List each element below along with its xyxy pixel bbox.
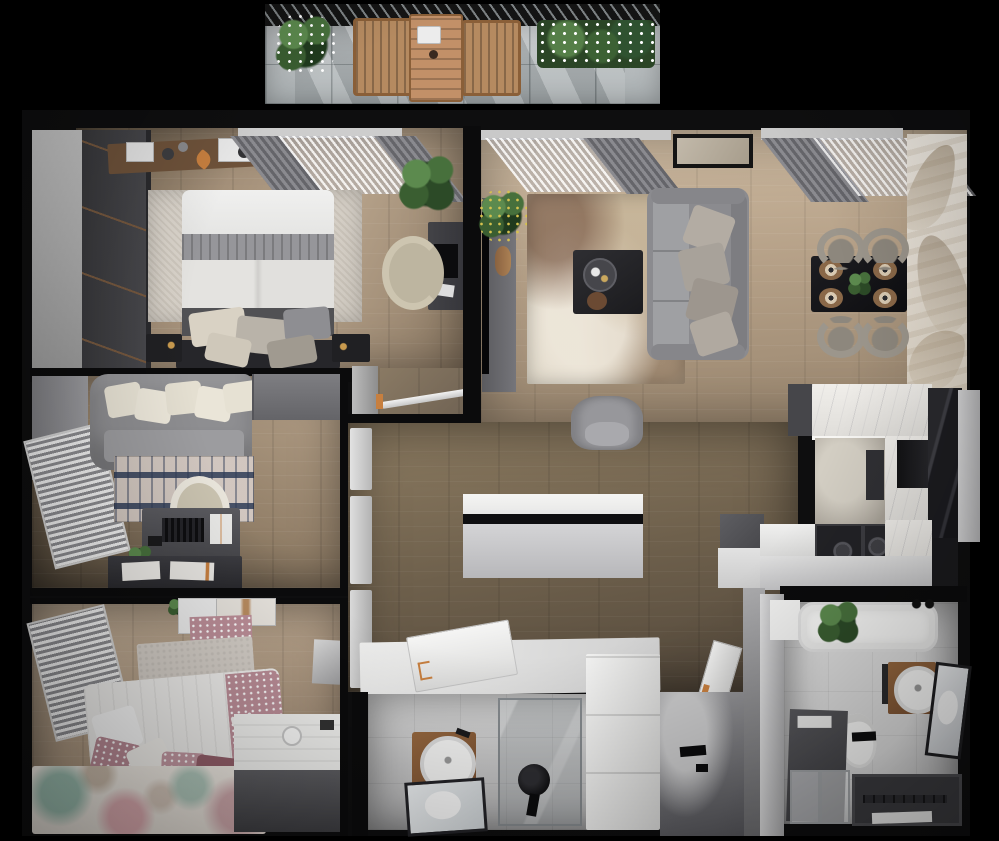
nook-floor — [660, 692, 744, 836]
mural-leaf — [907, 230, 967, 338]
kitchen-counter-wedge — [760, 524, 818, 556]
kids-standing-mirror — [312, 639, 342, 684]
guestbath-glass-partition — [498, 698, 582, 826]
kitchen-upper-dark-cabinet — [788, 384, 812, 436]
mainbath-north-wall — [780, 586, 967, 602]
door-handle — [418, 661, 433, 681]
kitchen-marble-counter — [812, 384, 932, 440]
kitchen-corner-cabinet-dark — [720, 514, 764, 552]
nightstand-left — [146, 334, 182, 362]
island-front — [463, 524, 643, 578]
bathtub-faucet — [910, 596, 936, 612]
kitchen-niche — [866, 450, 884, 500]
dining-chair — [861, 316, 909, 358]
wall-art-frame — [673, 134, 753, 168]
armchair — [571, 396, 643, 450]
tv-console-plant — [477, 188, 529, 244]
balcony-chair-right — [461, 20, 521, 96]
office-notebook — [210, 514, 232, 544]
main-bathroom — [760, 586, 967, 836]
balcony-flower-planter — [537, 20, 655, 68]
office-table-book-2 — [170, 561, 215, 581]
balcony-table-tray — [417, 26, 441, 44]
mainbath-plant — [816, 598, 862, 648]
bed-gray-throw — [182, 234, 334, 262]
hall-panel-wardrobe — [350, 496, 372, 584]
coffee-table-tray — [583, 258, 617, 292]
kids-desk-bowl — [282, 726, 302, 746]
balcony-chair-left — [353, 18, 413, 96]
mainbath-corner-cabinet — [770, 600, 800, 640]
balcony — [265, 4, 660, 104]
office-south-wall — [30, 588, 348, 596]
balcony-plant-left — [273, 12, 337, 78]
dining-chair — [817, 228, 865, 270]
bench-white-tray — [798, 716, 832, 728]
balcony-table-bottle — [429, 50, 438, 59]
kitchen-tall-glass-cabinet — [928, 388, 962, 538]
mural-leaf — [907, 138, 964, 238]
guestbath-black-stool — [518, 764, 550, 796]
office-table-book — [122, 561, 161, 581]
coffee-table-bowl — [587, 292, 607, 310]
place-setting — [873, 288, 897, 308]
kids-desk-front — [234, 770, 346, 832]
kitchen-counter-front — [760, 556, 932, 590]
floor-plan-render — [0, 0, 999, 841]
bedroom-shelf-bowl — [178, 142, 188, 152]
bedroom-shelf-vase — [162, 148, 174, 160]
bed-duvet — [182, 260, 334, 312]
office-phone — [148, 536, 162, 546]
kids-floral-rug — [32, 766, 266, 834]
mirror-reflection-basin — [424, 790, 462, 820]
armchair-seat — [585, 422, 629, 446]
kitchen-corner-cabinet-front — [718, 548, 764, 588]
dining-chair — [861, 228, 909, 270]
island-top — [463, 494, 643, 514]
leaf-mural-wall — [907, 134, 967, 396]
office-cabinet — [252, 374, 348, 420]
built-in-oven — [897, 440, 928, 488]
office-keyboard — [162, 518, 204, 542]
coffee-table — [573, 250, 643, 314]
island-black-stripe — [463, 514, 643, 524]
kitchen-side-panel — [958, 390, 980, 542]
guestbath-leaning-mirror — [404, 777, 488, 836]
hall-panel-wardrobe — [350, 428, 372, 490]
sofa-armrest-top — [651, 188, 745, 204]
bedroom-wardrobe-side-panel — [32, 130, 82, 372]
shower-white-mat — [872, 811, 932, 824]
floor-mat-dark — [680, 745, 707, 757]
mirror-reflection-basin — [936, 689, 960, 725]
guestbath-tall-cabinet — [586, 654, 660, 830]
hall-north-wall — [348, 414, 481, 423]
frosted-screen — [790, 770, 820, 824]
decor-wood-log — [495, 246, 511, 276]
bedroom-shelf-tray — [126, 142, 154, 162]
black-bath-mat — [852, 731, 876, 741]
frosted-screen — [820, 770, 850, 824]
home-office — [30, 368, 348, 596]
bedroom-living-partition-wall — [463, 126, 481, 414]
bed — [182, 190, 334, 370]
kids-room — [30, 598, 348, 836]
dining-centerpiece-plant — [847, 270, 873, 298]
white-island-cabinet — [463, 494, 643, 578]
dining-chair — [817, 316, 865, 358]
shower-drain — [863, 795, 947, 803]
living-sofa — [647, 188, 749, 360]
kids-desk-item — [320, 720, 334, 730]
guestbath-left-wall — [352, 692, 368, 836]
place-setting — [819, 288, 843, 308]
guest-bathroom — [352, 636, 665, 836]
floor-item-dark — [696, 764, 708, 772]
